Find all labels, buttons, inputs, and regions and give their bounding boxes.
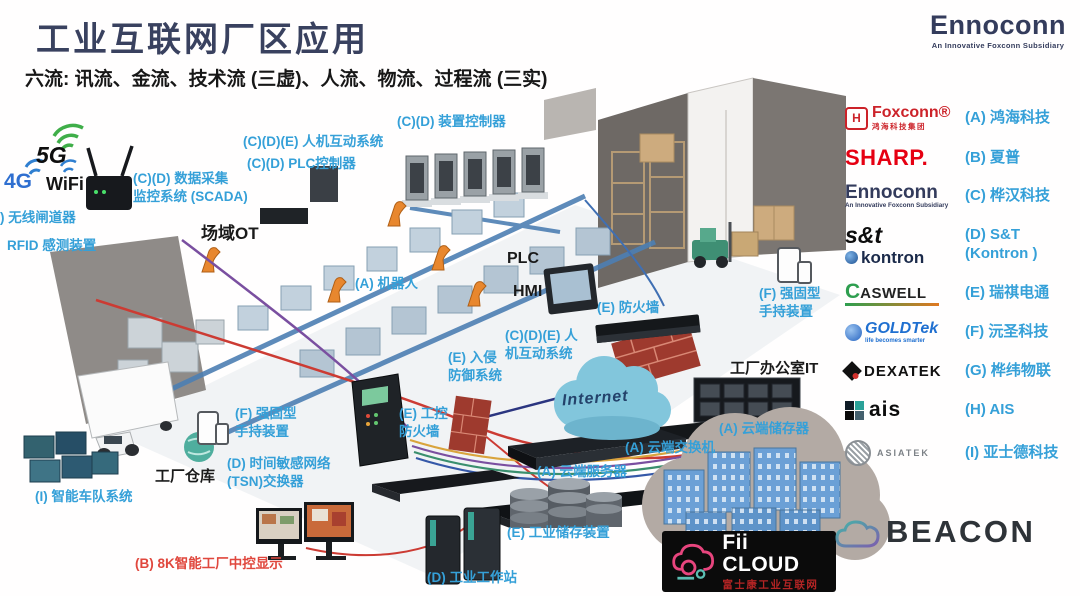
goldtek-globe-icon [845,324,862,341]
legend-row-caswell: CASWELL(E) 瑞祺电通 [845,274,1077,312]
controller-cabinets [402,148,548,207]
diagram-label: ) 无线闸道器 [0,209,76,227]
beacon-logo-text: BEACON [886,514,1035,550]
diagram-label: (E) 入侵防御系统 [448,349,502,384]
kontron-globe-icon [845,251,858,264]
diagram-label: (C)(D) 装置控制器 [397,113,506,131]
asiatek-logo: ASIATEK [845,440,965,466]
sharp-logo: SHARP. [845,145,965,171]
diagram-label: (E) 工业储存装置 [507,524,610,542]
diagram-label: (A) 云端储存器 [719,420,809,438]
control-monitors-icon [256,502,354,560]
fii-cloud-badge: Fii CLOUD 富士康工业互联网 [662,531,836,592]
network-switch-icon [260,208,308,224]
fii-cloud-title: Fii CLOUD [722,532,828,576]
legend-row-dexatek: DEXATEK(G) 桦纬物联 [845,352,1077,390]
4g-label: 4G [4,170,32,194]
legend-row-sharp: SHARP.(B) 夏普 [845,140,1077,176]
diagram-label: 场域OT [201,223,259,245]
diagram-label: (A) 云端服务器 [537,463,627,481]
diagram-label: (C)(D) 数据采集监控系统 (SCADA) [133,170,248,205]
hmi-panel-icon [543,263,598,315]
5g-label: 5G [36,142,67,169]
cardboard-box-icon [754,206,794,240]
wireless-router-icon [86,146,132,210]
firewall-brick-icon [448,396,491,454]
diagram-label: (I) 智能车队系统 [35,488,133,506]
handheld-device-icon [778,248,811,283]
page-title: 工业互联网厂区应用 [36,12,369,61]
legend-label: (E) 瑞祺电通 [965,284,1049,303]
page-subtitle: 六流: 讯流、金流、技术流 (三虚)、人流、物流、过程流 (三实) [25,64,547,91]
beacon-cloud-icon [834,512,880,552]
foxconn-mark-icon: H [845,107,868,130]
wifi-label: WiFi [46,174,84,195]
slide: 工业互联网厂区应用 六流: 讯流、金流、技术流 (三虚)、人流、物流、过程流 (… [0,0,1080,596]
asiatek-mark-icon [845,440,871,466]
ennoconn-brand-name: Ennoconn [930,12,1066,39]
ais-logo: ais [845,398,965,422]
legend-row-ennoconn: EnnoconnAn Innovative Foxconn Subsidiary… [845,176,1077,216]
legend-label: (C) 桦汉科技 [965,187,1050,206]
caswell-underline [845,303,939,306]
legend-label: (G) 桦纬物联 [965,362,1051,381]
legend-label: (B) 夏普 [965,149,1020,168]
diagram-label: (F) 强固型手持装置 [759,285,821,320]
ennoconn-brand-tagline: An Innovative Foxconn Subsidiary [930,41,1066,50]
diagram-label: HMI [513,282,542,303]
legend-row-foxconn: HFoxconn®鸿海科技集团(A) 鸿海科技 [845,96,1077,140]
diagram-label: (C)(D)(E) 人机互动系统 [505,327,578,362]
diagram-label: (A) 云端交换机 [625,439,715,457]
legend-row-ais: ais(H) AIS [845,390,1077,430]
legend-row-goldtek: GOLDTeklife becomes smarter(F) 沅圣科技 [845,312,1077,352]
legend-label: (D) S&T(Kontron ) [965,226,1037,264]
fii-cloud-icon [670,540,716,584]
dexatek-logo: DEXATEK [845,363,965,380]
diagram-label: (B) 8K智能工厂中控显示 [135,555,283,573]
legend-label: (A) 鸿海科技 [965,109,1050,128]
legend-row-snt: s&tkontron(D) S&T(Kontron ) [845,216,1077,274]
legend-row-asiatek: ASIATEK(I) 亚士德科技 [845,430,1077,476]
diagram-label: (E) 防火墙 [597,299,659,317]
fii-cloud-subtitle: 富士康工业互联网 [722,580,828,591]
ennoconn-logo: EnnoconnAn Innovative Foxconn Subsidiary [845,183,965,209]
legend-label: (H) AIS [965,401,1014,420]
diagram-label: 工厂仓库 [155,467,215,487]
diagram-label: (A) 机器人 [355,275,418,293]
beacon-logo: BEACON [834,512,1035,552]
diagram-label: RFID 感测装置 [7,237,96,255]
goldtek-logo: GOLDTeklife becomes smarter [845,321,965,344]
ais-mark-icon [845,401,864,420]
vendor-legend: HFoxconn®鸿海科技集团(A) 鸿海科技SHARP.(B) 夏普Ennoc… [845,96,1077,476]
legend-label: (I) 亚士德科技 [965,444,1058,463]
legend-label: (F) 沅圣科技 [965,323,1048,342]
diagram-label: (D) 时间敏感网络(TSN)交换器 [227,455,331,490]
diagram-label: (E) 工控防火墙 [399,405,448,440]
foxconn-logo: HFoxconn®鸿海科技集团 [845,105,965,131]
diagram-label: (F) 强固型手持装置 [235,405,297,440]
diagram-label: PLC [507,249,539,270]
cardboard-box-icon [640,134,674,162]
snt-logo: s&tkontron [845,224,965,266]
diagram-label: (C)(D)(E) 人机互动系统 [243,133,383,151]
ennoconn-brand-logo: Ennoconn An Innovative Foxconn Subsidiar… [930,12,1066,50]
dexatek-mark-icon [842,361,862,381]
diagram-label: 工厂办公室IT [730,359,818,379]
caswell-logo: CASWELL [845,281,965,306]
diagram-label: (D) 工业工作站 [427,569,517,587]
diagram-label: (C)(D) PLC控制器 [247,155,356,173]
